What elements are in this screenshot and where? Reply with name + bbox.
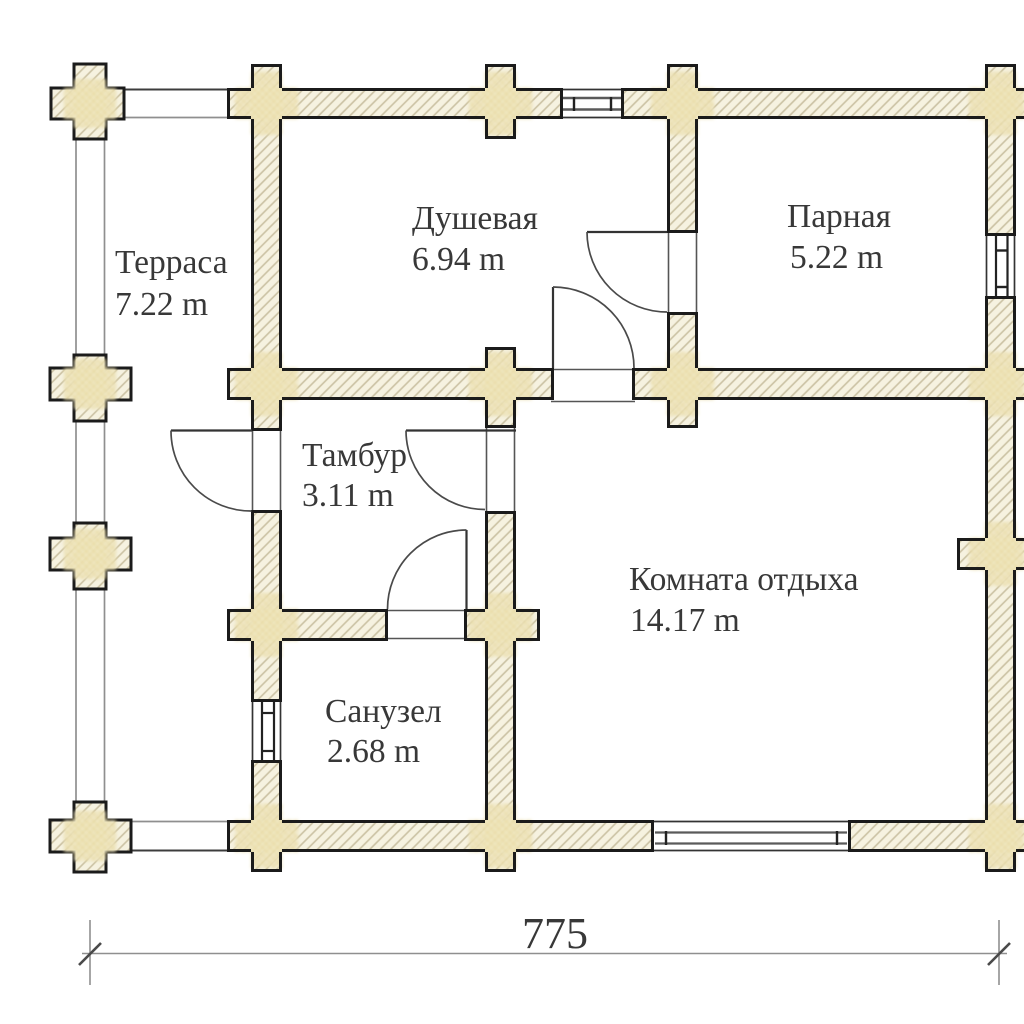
- svg-text:5.22 m: 5.22 m: [790, 239, 883, 276]
- svg-text:7.22 m: 7.22 m: [115, 286, 208, 323]
- svg-text:2.68 m: 2.68 m: [327, 733, 420, 770]
- svg-text:Санузел: Санузел: [325, 693, 442, 730]
- svg-text:Комната отдыха: Комната отдыха: [629, 561, 859, 598]
- svg-text:775: 775: [522, 909, 588, 958]
- svg-text:Парная: Парная: [787, 198, 891, 235]
- svg-text:14.17 m: 14.17 m: [630, 602, 740, 639]
- svg-text:Терраса: Терраса: [115, 244, 228, 281]
- svg-text:Душевая: Душевая: [412, 200, 538, 237]
- svg-text:Тамбур: Тамбур: [302, 437, 407, 474]
- svg-text:3.11 m: 3.11 m: [302, 477, 394, 514]
- svg-text:6.94 m: 6.94 m: [412, 241, 505, 278]
